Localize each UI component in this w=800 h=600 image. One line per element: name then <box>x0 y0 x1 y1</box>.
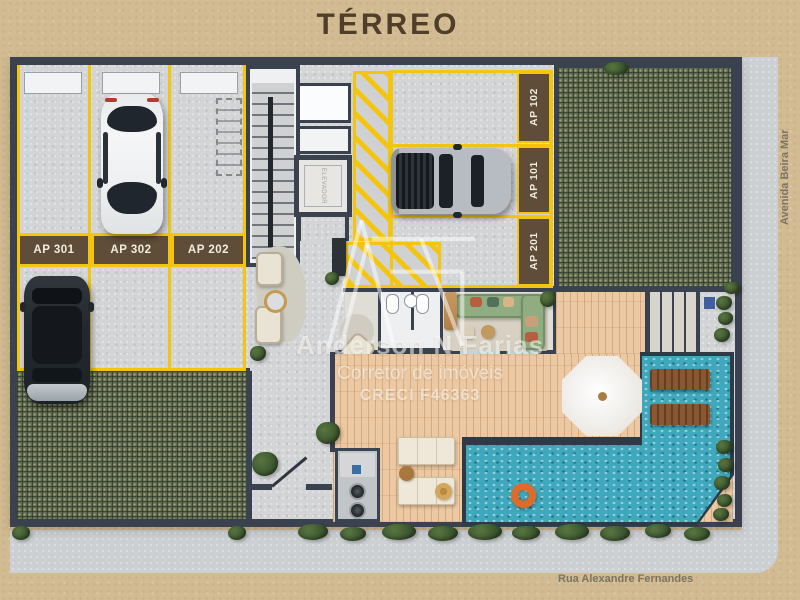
gate-wall <box>246 484 272 490</box>
stair-treads <box>252 83 294 259</box>
floor-plan-canvas: TÉRREO AP 301 AP 302 AP 202 AP 102 AP 10… <box>0 0 800 600</box>
straw-hat <box>435 483 452 500</box>
staircase <box>246 65 300 267</box>
truck-bed <box>396 153 434 209</box>
car-taillight <box>105 98 117 102</box>
stall-line <box>168 65 171 371</box>
car-side-glass <box>103 132 108 184</box>
elevator-cab: ELEVADOR <box>304 165 342 207</box>
truck-mirror <box>453 144 462 150</box>
deck-lounger <box>397 437 455 465</box>
suv-dark-top-view <box>24 276 90 404</box>
armchair <box>256 252 283 286</box>
watermark-name: Anderson N Farias <box>230 330 610 361</box>
sofa-pillow <box>525 316 538 327</box>
page-title: TÉRREO <box>0 8 788 42</box>
elevator: ELEVADOR <box>294 155 352 217</box>
parking-label-text: AP 101 <box>528 161 540 199</box>
utility-room <box>297 83 351 123</box>
street-label-avenue: Avenida Beira Mar <box>779 55 791 225</box>
truck-windshield <box>471 155 484 207</box>
car-taillight <box>147 98 159 102</box>
round-table <box>264 290 287 313</box>
car-rear-glass <box>107 106 157 132</box>
bbq-sink <box>352 465 361 474</box>
parking-label-ap201: AP 201 <box>517 217 551 286</box>
stall-line <box>17 65 20 371</box>
sidewalk-right <box>742 57 778 530</box>
utility-room <box>297 126 351 154</box>
suv-mirror <box>88 302 94 312</box>
suv-mirror <box>20 302 26 312</box>
parking-label-text: AP 202 <box>188 244 229 256</box>
watermark-creci: CRECI F46363 <box>230 387 610 405</box>
street-label-rua: Rua Alexandre Fernandes <box>558 573 693 585</box>
side-table <box>399 466 414 481</box>
car-mirror <box>97 178 103 188</box>
sun-lounger <box>650 369 710 390</box>
car-windshield <box>107 182 157 214</box>
parking-label-ap101: AP 101 <box>517 146 551 214</box>
car-white-top-view <box>101 94 163 234</box>
stair-handrail <box>268 97 273 247</box>
wheel-stop <box>102 72 160 94</box>
pickup-truck-top-view <box>391 148 511 214</box>
wall-top <box>10 57 742 65</box>
truck-cab-glass <box>439 154 453 208</box>
bbq-burner <box>349 483 366 500</box>
parking-label-ap202: AP 202 <box>171 233 246 267</box>
gate-wall <box>306 484 332 490</box>
bbq-burner <box>349 502 366 519</box>
steps <box>645 292 700 352</box>
suv-windshield <box>32 288 82 304</box>
suv-rear-window <box>32 368 82 382</box>
watermark-role: Corretor de imóveis <box>230 363 610 385</box>
parking-label-text: AP 201 <box>528 233 540 271</box>
deck-wall-top <box>553 286 735 292</box>
elevator-label: ELEVADOR <box>320 168 326 204</box>
car-side-glass <box>156 132 161 184</box>
pool-gate <box>704 297 715 309</box>
sofa-pillow <box>503 297 514 307</box>
suv-glass-roof <box>32 306 82 364</box>
bike-rack-area <box>216 98 242 176</box>
suv-tailgate <box>27 384 87 401</box>
sofa-pillow <box>487 297 499 307</box>
wheel-stop <box>180 72 238 94</box>
parking-label-text: AP 302 <box>110 244 151 256</box>
parking-label-text: AP 301 <box>33 244 74 256</box>
bbq-station <box>335 448 380 522</box>
pool-float <box>511 483 536 508</box>
parking-label-ap301: AP 301 <box>17 233 91 267</box>
parking-label-ap302: AP 302 <box>91 233 171 267</box>
parking-label-ap102: AP 102 <box>517 72 551 143</box>
wall-left <box>10 57 17 527</box>
parking-label-text: AP 102 <box>528 89 540 127</box>
sun-lounger <box>650 404 710 425</box>
watermark-text-block: Anderson N Farias Corretor de imóveis CR… <box>230 330 610 405</box>
grass-paver-top-right <box>554 64 735 292</box>
wheel-stop <box>24 72 82 94</box>
car-mirror <box>161 178 167 188</box>
